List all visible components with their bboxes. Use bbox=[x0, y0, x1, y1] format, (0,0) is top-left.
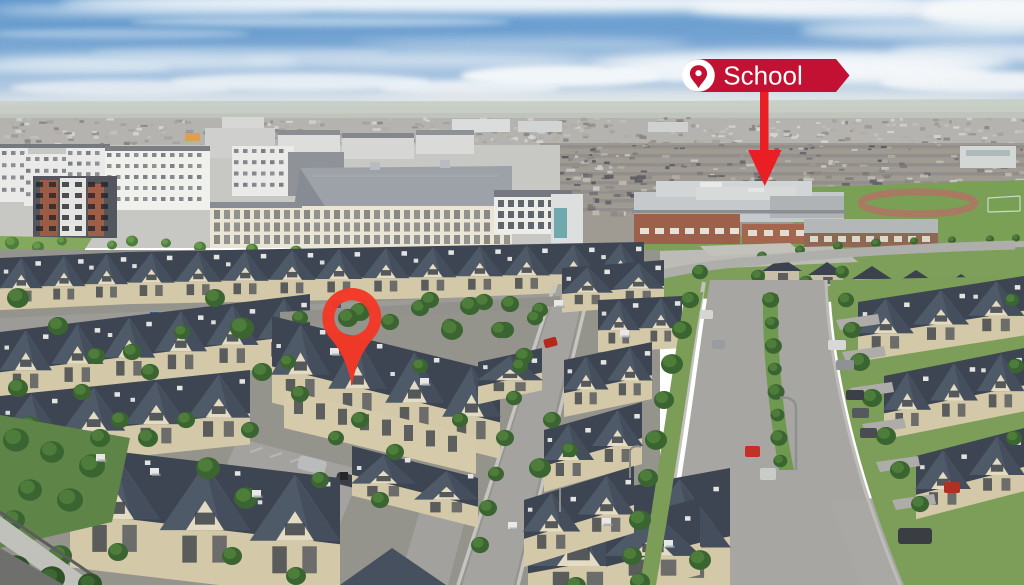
svg-text:School: School bbox=[723, 61, 803, 91]
